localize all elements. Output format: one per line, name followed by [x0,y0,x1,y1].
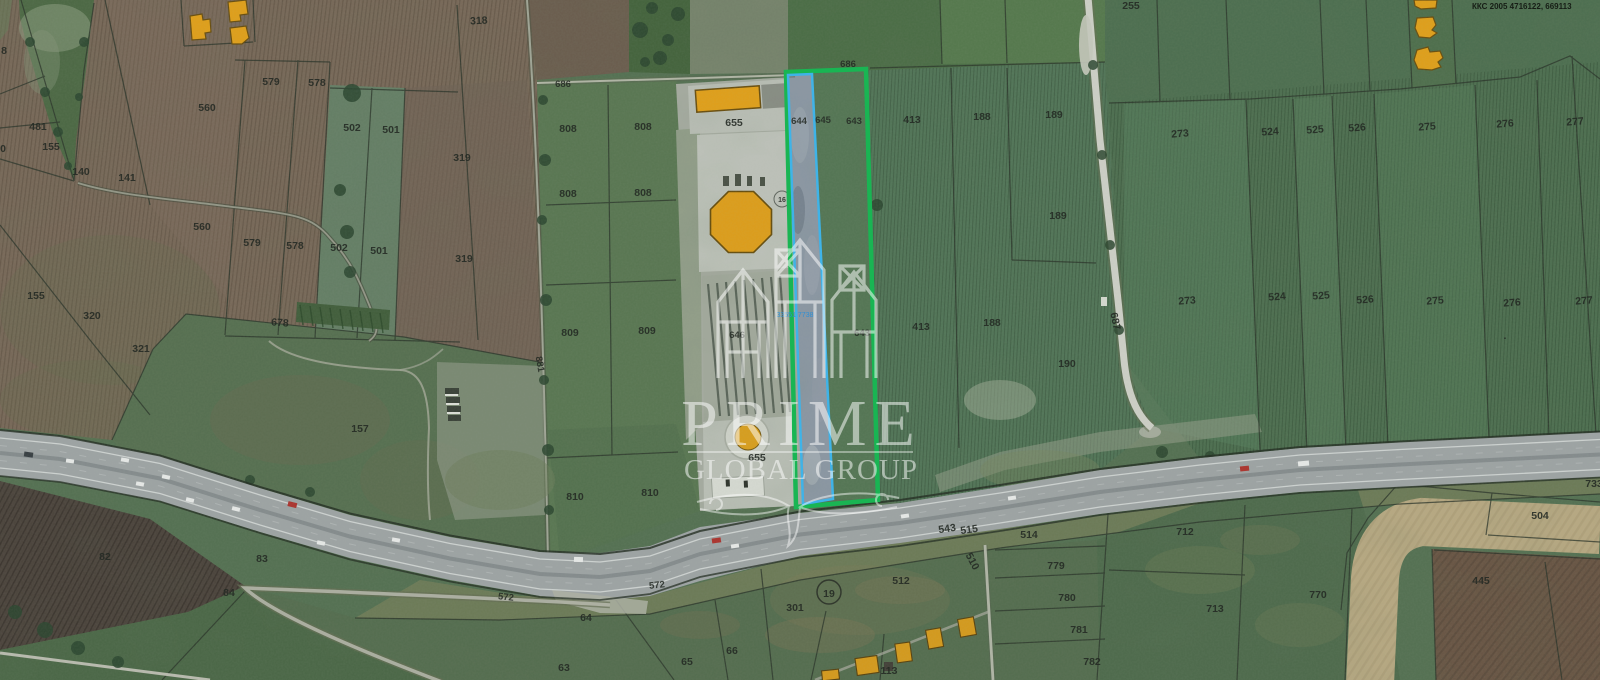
svg-text:273: 273 [1171,127,1189,140]
svg-text:514: 514 [1020,529,1038,541]
svg-text:781: 781 [1070,624,1088,636]
svg-text:502: 502 [343,122,361,134]
svg-text:779: 779 [1047,560,1065,572]
svg-text:413: 413 [903,114,921,126]
svg-text:713: 713 [1206,603,1224,615]
svg-text:155: 155 [27,290,45,302]
svg-text:189: 189 [1045,109,1063,121]
svg-text:276: 276 [1503,296,1521,309]
svg-text:301: 301 [786,602,804,614]
svg-text:578: 578 [308,77,326,89]
svg-text:277: 277 [1575,294,1593,307]
svg-text:526: 526 [1348,121,1366,134]
svg-text:GLOBAL GROUP: GLOBAL GROUP [684,454,918,486]
svg-text:780: 780 [1058,592,1076,604]
svg-text:810: 810 [641,487,659,499]
svg-text:808: 808 [559,188,577,200]
svg-text:8: 8 [1,45,7,57]
svg-text:140: 140 [72,166,90,178]
svg-text:782: 782 [1083,656,1101,668]
svg-text:65: 65 [681,656,693,668]
svg-text:543: 543 [938,522,957,536]
svg-text:712: 712 [1176,526,1194,538]
svg-text:502: 502 [330,242,348,254]
svg-text:572: 572 [649,579,666,592]
svg-text:189: 189 [1049,210,1067,222]
svg-text:ККС 2005 4716122, 669113: ККС 2005 4716122, 669113 [1472,2,1572,11]
svg-text:655: 655 [725,117,743,129]
svg-text:644: 644 [791,116,808,127]
svg-text:275: 275 [1418,120,1436,133]
svg-text:320: 320 [83,310,101,322]
svg-text:63: 63 [558,662,570,674]
svg-text:273: 273 [1178,294,1196,307]
svg-text:645: 645 [815,115,832,126]
svg-text:810: 810 [566,491,584,503]
svg-text:321: 321 [132,343,150,355]
svg-text:255: 255 [1122,0,1140,12]
svg-text:16: 16 [778,197,786,204]
svg-text:82: 82 [99,551,111,563]
svg-text:318: 318 [470,15,488,28]
svg-text:512: 512 [892,575,910,587]
svg-text:808: 808 [634,187,652,199]
svg-text:33551 7738: 33551 7738 [777,312,814,319]
svg-text:525: 525 [1312,289,1330,302]
svg-text:809: 809 [561,327,579,339]
svg-text:572: 572 [497,591,514,604]
svg-text:809: 809 [638,325,656,337]
svg-text:524: 524 [1261,125,1279,138]
svg-text:560: 560 [198,102,216,114]
svg-text:66: 66 [726,645,738,657]
svg-text:770: 770 [1309,589,1327,601]
svg-text:188: 188 [983,317,1001,329]
svg-text:83: 83 [256,553,268,565]
svg-text:501: 501 [370,245,388,257]
svg-text:686: 686 [840,59,856,70]
svg-text:560: 560 [193,221,211,233]
svg-text:277: 277 [1566,115,1584,128]
svg-text:84: 84 [223,587,235,599]
svg-text:.: . [1504,330,1507,342]
svg-text:579: 579 [243,237,261,249]
svg-text:141: 141 [118,172,136,184]
svg-text:481: 481 [29,121,47,133]
svg-text:319: 319 [455,253,473,265]
svg-text:678: 678 [271,316,289,329]
svg-text:686: 686 [555,79,571,90]
svg-text:501: 501 [382,124,400,136]
svg-text:526: 526 [1356,293,1374,306]
svg-text:733: 733 [1585,478,1600,490]
svg-text:155: 155 [42,141,60,153]
svg-text:578: 578 [286,240,304,252]
svg-text:524: 524 [1268,290,1286,303]
svg-text:413: 413 [912,321,930,333]
svg-text:808: 808 [559,123,577,135]
svg-text:275: 275 [1426,294,1444,307]
svg-text:525: 525 [1306,123,1324,136]
svg-text:190: 190 [1058,358,1076,370]
svg-text:PRIME: PRIME [681,387,923,460]
svg-text:113: 113 [881,665,898,677]
svg-text:64: 64 [580,612,592,624]
svg-text:0: 0 [0,143,6,155]
svg-text:276: 276 [1496,117,1514,130]
svg-text:643: 643 [846,116,862,127]
svg-text:515: 515 [960,523,979,537]
svg-text:445: 445 [1472,575,1490,587]
svg-text:19: 19 [823,588,835,600]
svg-text:808: 808 [634,121,652,133]
svg-text:319: 319 [453,152,471,164]
svg-text:188: 188 [973,111,991,123]
svg-text:157: 157 [351,423,369,435]
svg-text:504: 504 [1531,510,1549,522]
svg-text:579: 579 [262,76,280,88]
